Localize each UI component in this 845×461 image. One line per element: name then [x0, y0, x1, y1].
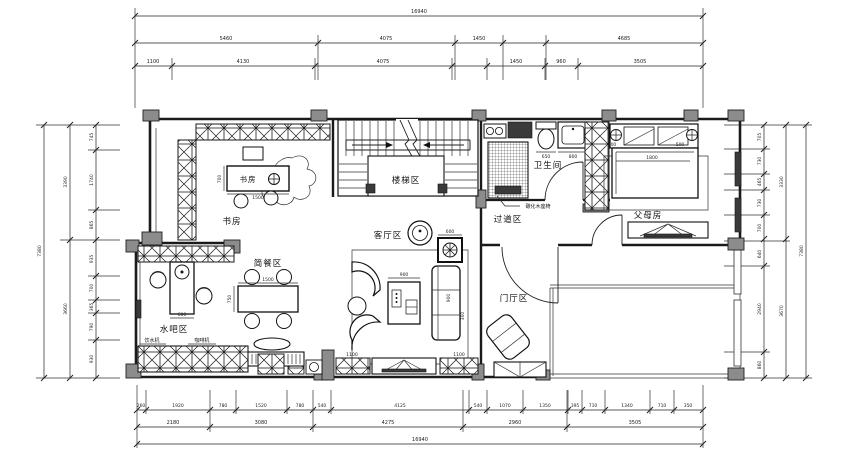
- dining-chair: [277, 270, 292, 285]
- room-label-foyer: 门厅区: [500, 293, 529, 304]
- dim-label: 3505: [629, 420, 642, 426]
- dim-label: 860: [757, 361, 763, 370]
- dim-label: 790: [89, 323, 95, 332]
- bar-stool: [196, 288, 212, 304]
- annotation-coffee-machine: 咖啡机: [194, 337, 209, 344]
- dim-label: 1920: [172, 403, 184, 409]
- dim-label: 1070: [499, 403, 511, 409]
- dim-label: 1100: [453, 352, 465, 358]
- dim-label: 1350: [539, 403, 551, 409]
- desk-label: 书房: [240, 174, 257, 184]
- dining-chair: [245, 270, 260, 285]
- dim-label: 16940: [411, 9, 427, 15]
- room-label-study: 书房: [222, 216, 241, 227]
- dim-label: 865: [89, 221, 95, 230]
- dim-label: 4685: [618, 36, 631, 42]
- stair-break: [396, 119, 418, 159]
- dim-label: 710: [658, 403, 667, 409]
- platter: [254, 338, 290, 350]
- dimensions-bottom: 260 1920 780 1520 780 540 4125 540 1070 …: [134, 403, 706, 447]
- dim-label: 4275: [382, 420, 395, 426]
- bookshelf-top: [196, 124, 330, 140]
- dim-label: 1520: [255, 403, 267, 409]
- dim-label: 1100: [346, 352, 358, 358]
- dim-label: 540: [474, 403, 483, 409]
- dim-label: 1740: [89, 174, 95, 186]
- parents-room: 300 500 1800 父母房: [585, 122, 708, 245]
- dim-label: 780: [296, 403, 305, 409]
- dim-label: 1100: [147, 59, 160, 65]
- stool: [234, 194, 248, 208]
- dim-label: 1450: [473, 36, 486, 42]
- cabinet: [258, 354, 284, 374]
- dim-label: 700: [89, 284, 95, 293]
- dimensions-left: 745 1740 865 935 700 365 790 930 3390 36…: [37, 122, 99, 381]
- dim-label: 930: [89, 355, 95, 364]
- dim-label: 800: [569, 154, 578, 160]
- dim-label: 705: [757, 133, 763, 142]
- dim-label: 1340: [621, 403, 633, 409]
- dim-label: 300: [608, 142, 617, 148]
- dim-label: 700: [757, 224, 763, 233]
- dim-label: 745: [89, 133, 95, 142]
- lounge-chair: [350, 315, 380, 350]
- window: [734, 250, 741, 294]
- room-label-stairs: 楼梯区: [392, 175, 421, 186]
- door-arc: [592, 215, 622, 245]
- cabinet: [508, 122, 532, 138]
- room-label-corridor: 过道区: [494, 214, 523, 225]
- annotation-water-dispenser: 饮水机: [144, 337, 159, 344]
- dim-label: 365: [89, 303, 95, 312]
- room-label-parents: 父母房: [634, 210, 663, 221]
- stairs: 楼梯区: [338, 119, 478, 196]
- dim-label: 600: [446, 229, 455, 235]
- room-label-living: 客厅区: [374, 230, 403, 241]
- dim-label: 5460: [220, 36, 233, 42]
- bookshelf-left: [178, 140, 196, 240]
- stool: [264, 191, 278, 205]
- dining-table: [238, 286, 298, 312]
- window-panel: [136, 300, 141, 318]
- dim-label: 700: [217, 175, 223, 184]
- tv: [382, 369, 426, 372]
- toilet-tank: [536, 122, 556, 129]
- dim-label: 16940: [412, 437, 428, 443]
- dim-label: 2180: [167, 420, 180, 426]
- dim-label: 780: [219, 403, 228, 409]
- dim-label: 1450: [510, 59, 523, 65]
- living-room: 客厅区 600 900 900 300 1100 1100: [288, 221, 478, 380]
- toilet: [538, 129, 554, 149]
- dim-label: 4130: [237, 59, 250, 65]
- dim-label: 2940: [757, 303, 763, 315]
- dimensions-right: 705 730 465 730 700 640 2940 860 3330 36…: [757, 122, 809, 381]
- dim-label: 465: [757, 178, 763, 187]
- floor-plan-drawing: 16940 5460 4075 1450 4685 1100 4130 4075…: [0, 0, 845, 461]
- room-label-bathroom: 卫生间: [534, 160, 563, 171]
- tv-side-cabinet: [440, 358, 478, 374]
- dim-label: 2960: [509, 420, 522, 426]
- dim-label: 935: [89, 255, 95, 264]
- dim-label: 7380: [799, 245, 805, 257]
- dim-label: 900: [400, 272, 409, 278]
- dining-chair: [277, 314, 292, 329]
- foyer: 门厅区: [484, 293, 546, 377]
- bar-bottom-cabinets: [138, 346, 248, 372]
- dim-label: 710: [589, 403, 598, 409]
- shower-seat: [495, 186, 521, 194]
- bar-stool: [150, 272, 166, 288]
- dim-label: 600: [178, 312, 187, 318]
- corridor: 过道区: [494, 214, 558, 303]
- dim-label: 640: [757, 250, 763, 259]
- dim-label: 395: [571, 403, 580, 409]
- dim-label: 3660: [63, 303, 69, 315]
- dim-label: 7380: [37, 245, 43, 257]
- desk-chair: [243, 147, 263, 160]
- dim-label: 730: [757, 199, 763, 208]
- annotation-wood-seat: 碳化木座椅: [525, 203, 550, 210]
- dim-label: 540: [318, 403, 327, 409]
- dim-label: 1800: [646, 155, 658, 161]
- dim-label: 750: [227, 295, 233, 304]
- dim-label: 960: [556, 59, 566, 65]
- window: [734, 300, 741, 366]
- dim-label: 4075: [380, 36, 393, 42]
- dim-label: 3330: [779, 176, 785, 188]
- dim-label: 350: [684, 403, 693, 409]
- room-label-water-bar: 水吧区: [160, 324, 189, 335]
- window-panel: [735, 198, 741, 232]
- floor-plan-canvas: 16940 5460 4075 1450 4685 1100 4130 4075…: [0, 0, 845, 461]
- dim-label: 3080: [255, 420, 268, 426]
- dim-label: 1500: [252, 195, 264, 201]
- dim-label: 650: [542, 154, 551, 160]
- dim-label: 260: [137, 403, 146, 409]
- dim-label: 500: [676, 142, 685, 148]
- dimensions-top: 16940 5460 4075 1450 4685 1100 4130 4075…: [132, 9, 706, 69]
- tv: [644, 234, 692, 237]
- dim-label: 3670: [779, 305, 785, 317]
- study-room: 书房 书房 700 1500: [178, 124, 330, 240]
- dim-label: 4075: [377, 59, 390, 65]
- dim-label: 900: [446, 294, 452, 303]
- room-label-dining: 简餐区: [254, 258, 283, 269]
- dim-label: 730: [757, 157, 763, 166]
- foyer-armchair: [484, 312, 532, 362]
- bar-top-cabinet: [138, 246, 234, 262]
- sofa: [432, 266, 460, 340]
- lounge-chair: [352, 262, 380, 296]
- tv-side-cabinet: [336, 358, 370, 374]
- dim-label: 4125: [394, 403, 406, 409]
- round-stool: [348, 297, 366, 315]
- dim-label: 3390: [63, 176, 69, 188]
- dim-label: 3505: [634, 59, 647, 65]
- window-panel: [735, 152, 741, 186]
- bathroom: 650 800 卫生间 碳化木座椅: [484, 122, 588, 210]
- dining-chair: [245, 314, 260, 329]
- dim-label: 300: [460, 312, 466, 321]
- wardrobe: [585, 122, 609, 210]
- dim-label: 1500: [262, 277, 274, 283]
